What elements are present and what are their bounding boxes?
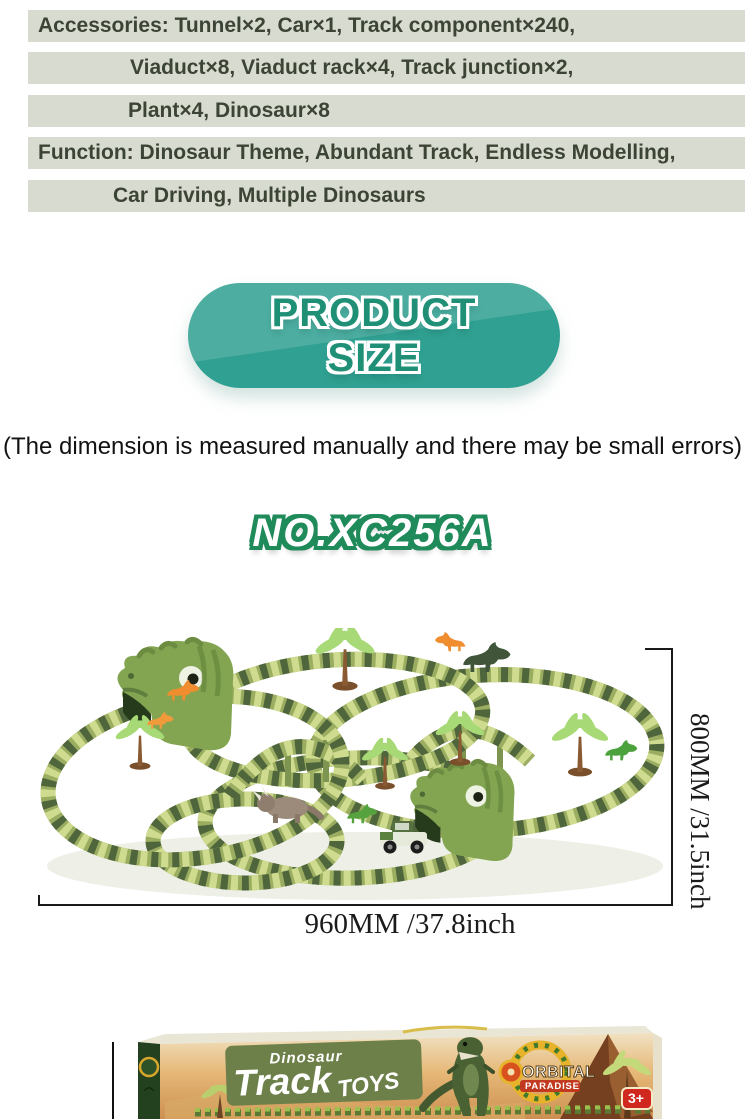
box-logo-orbital: ORBITAL	[522, 1064, 595, 1081]
height-dimension-line	[671, 649, 673, 906]
box-dimension-line	[112, 1042, 114, 1119]
width-dimension-label: 960MM /37.8inch	[180, 908, 640, 941]
box-logo-paradise: PARADISE	[525, 1081, 580, 1092]
function-text-2: Car Driving, Multiple Dinosaurs	[113, 184, 426, 208]
product-detail-page: { "info_bars": { "bg_color": "#d8dcd0", …	[0, 0, 745, 1119]
box-age-badge: 3+	[622, 1088, 652, 1109]
box-brand-panel: Dinosaur Track TOYS	[225, 1039, 423, 1106]
accessories-bar-line3: Plant×4, Dinosaur×8	[28, 95, 745, 127]
box-age-text: 3+	[628, 1090, 644, 1106]
box-brand-track: Track	[233, 1059, 335, 1103]
function-bar-line2: Car Driving, Multiple Dinosaurs	[28, 180, 745, 212]
height-dimension-cap	[645, 648, 673, 650]
box-left-side	[138, 1042, 160, 1119]
product-size-badge: PRODUCT SIZE	[188, 283, 560, 388]
function-text-1: Function: Dinosaur Theme, Abundant Track…	[38, 141, 675, 165]
accessories-text-1: Accessories: Tunnel×2, Car×1, Track comp…	[38, 14, 575, 38]
accessories-text-2: Viaduct×8, Viaduct rack×4, Track junctio…	[130, 56, 573, 80]
product-size-line2: SIZE	[328, 336, 421, 381]
width-dimension-tick	[38, 895, 40, 906]
package-box-photo: Dinosaur Track TOYS ORBITAL PARADISE 3+	[105, 1022, 665, 1119]
measurement-note: (The dimension is measured manually and …	[0, 433, 745, 461]
toy-dinosaur-green-2	[605, 740, 637, 760]
ground-shadow	[47, 832, 663, 900]
palm-tree-right	[550, 711, 610, 776]
model-number: NO.XC256A	[0, 511, 745, 556]
box-right-side	[653, 1033, 662, 1119]
function-bar-line1: Function: Dinosaur Theme, Abundant Track…	[28, 137, 745, 169]
track-set-photo	[35, 628, 675, 908]
accessories-text-3: Plant×4, Dinosaur×8	[128, 99, 330, 123]
toy-dinosaur-orange-3	[435, 632, 465, 651]
product-size-line1: PRODUCT	[272, 291, 477, 336]
accessories-bar-line2: Viaduct×8, Viaduct rack×4, Track junctio…	[28, 52, 745, 84]
accessories-bar-line1: Accessories: Tunnel×2, Car×1, Track comp…	[28, 10, 745, 42]
width-dimension-line	[38, 904, 673, 906]
height-dimension-label: 800MM /31.5inch	[684, 713, 715, 910]
